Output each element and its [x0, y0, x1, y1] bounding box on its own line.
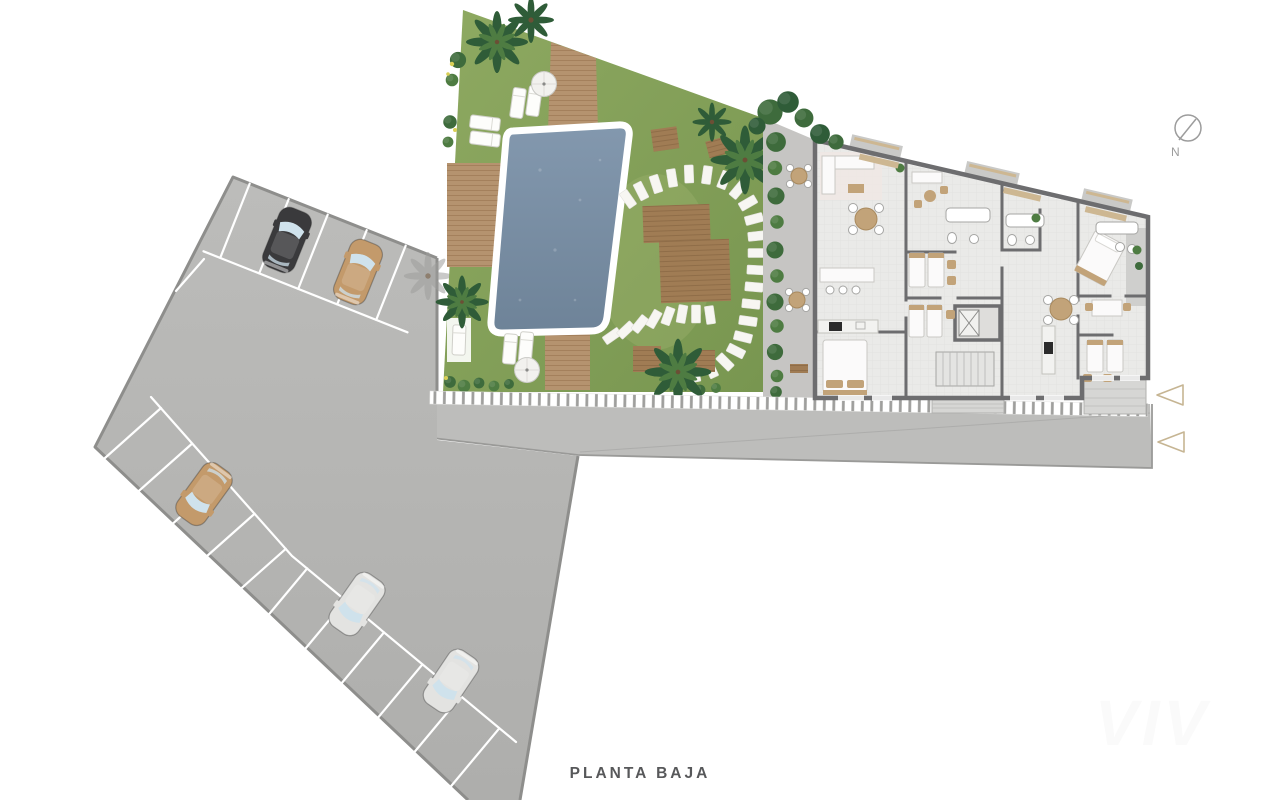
compass-needle-icon	[1179, 119, 1196, 140]
site-plan-canvas: VIV N PLANTA BAJA	[0, 0, 1280, 800]
compass: N	[1171, 115, 1201, 159]
single-bed	[928, 253, 944, 287]
stairs	[936, 352, 994, 386]
palm-shadow	[404, 252, 452, 300]
site-plan-page: VIV N PLANTA BAJA	[0, 0, 1280, 800]
floor-title: PLANTA BAJA	[570, 765, 711, 782]
single-bed	[909, 253, 925, 287]
terrace-bench	[790, 364, 808, 373]
parasol-top	[532, 72, 557, 97]
entrance-arrow-icon-1	[1157, 385, 1183, 405]
pool-garden	[436, 0, 780, 405]
deck-bottom	[545, 328, 590, 390]
parasol-bottom	[515, 358, 540, 383]
bathtub	[946, 208, 990, 222]
swimming-pool	[491, 125, 629, 333]
bathtub	[1096, 222, 1138, 234]
apartment-building	[810, 124, 1148, 414]
watermark-logo: VIV	[1095, 687, 1211, 759]
compass-north-label: N	[1171, 145, 1180, 159]
entrance-arrows	[1157, 385, 1184, 452]
elevator-core	[955, 306, 1000, 340]
entrance-arrow-icon-2	[1158, 432, 1184, 452]
